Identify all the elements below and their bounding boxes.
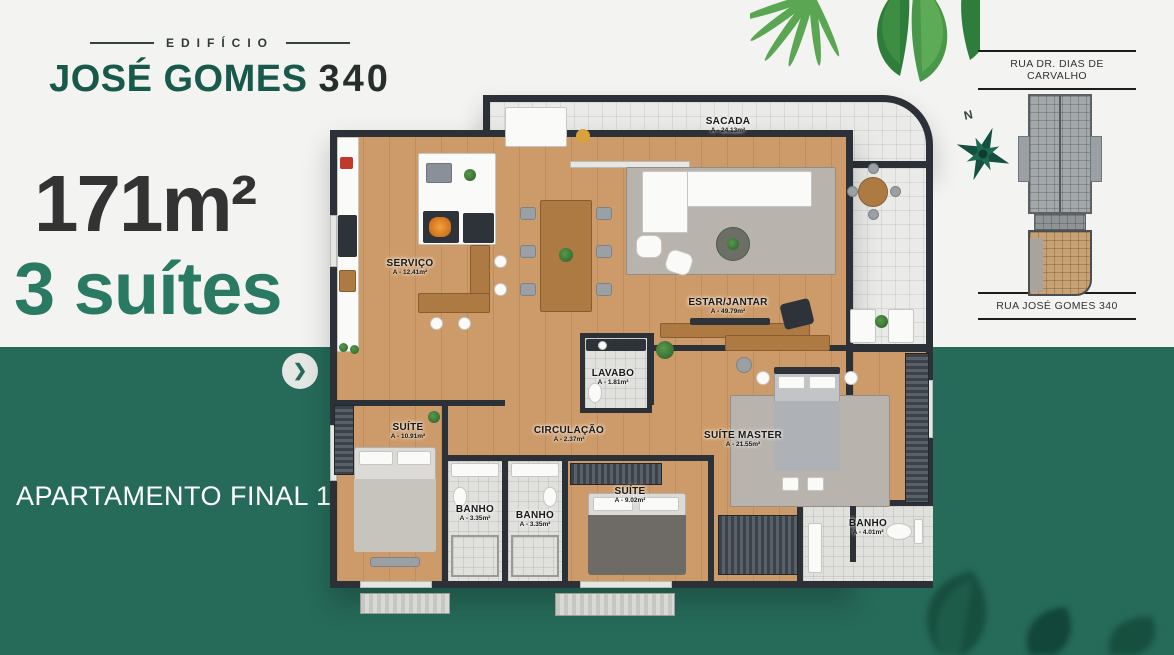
outdoor-chair	[868, 163, 879, 174]
dining-chair	[520, 245, 536, 258]
bar-stool	[494, 255, 507, 268]
plant	[656, 341, 674, 359]
chevron-right-icon: ❯	[293, 361, 307, 381]
foot-bench	[807, 477, 824, 491]
cooktop	[338, 215, 357, 257]
tv	[690, 318, 770, 325]
bed-blanket	[588, 515, 686, 575]
street-label-top: RUA DR. DIAS DE CARVALHO	[978, 50, 1136, 90]
room-label-suite-1: SUÍTE A - 10.91m²	[391, 422, 425, 440]
wardrobe	[718, 515, 798, 575]
pillow	[397, 451, 431, 465]
headboard	[774, 367, 840, 374]
plant	[339, 343, 348, 352]
pillow	[778, 376, 805, 389]
minimap-wing-right	[1090, 136, 1102, 182]
toilet	[543, 487, 557, 507]
logo-building-number: 340	[319, 58, 391, 100]
island-sink	[426, 163, 452, 183]
wall	[562, 455, 568, 581]
desk-chair	[736, 357, 752, 373]
minimap-highlighted-unit	[1028, 230, 1092, 296]
dining-chair	[596, 207, 612, 220]
minimap-divider	[1059, 96, 1061, 212]
compass-star-icon	[950, 106, 1012, 190]
dark-leaves-decoration	[920, 535, 1174, 655]
exterior-bench	[555, 593, 675, 616]
apartment-area-stat: 171m²	[34, 158, 255, 250]
apartment-suites-stat: 3 suítes	[14, 246, 282, 331]
wardrobe	[334, 405, 354, 475]
wardrobe	[905, 353, 929, 503]
toilet-tank	[914, 519, 923, 544]
pillow	[809, 376, 836, 389]
logo-building-name: JOSÉ GOMES	[49, 58, 307, 100]
shower	[511, 535, 559, 577]
room-label-sacada: SACADA A - 24.13m²	[706, 116, 751, 134]
bar-stool	[494, 283, 507, 296]
wall	[708, 455, 714, 581]
dining-chair	[596, 245, 612, 258]
building-minimap	[1018, 92, 1102, 298]
pillow	[359, 451, 393, 465]
bed-blanket	[774, 401, 840, 471]
plant	[875, 315, 888, 328]
room-label-suite-2: SUÍTE A - 9.02m²	[615, 486, 646, 504]
lavabo-basin	[598, 341, 607, 350]
compass-rose: N	[950, 106, 1012, 195]
room-label-servico: SERVIÇO A - 12.41m²	[387, 258, 434, 276]
dining-chair	[520, 207, 536, 220]
coffee-table-plant	[727, 238, 739, 250]
minimap-unit-rooms	[1030, 238, 1043, 292]
sun-lounger	[850, 309, 876, 343]
sun-lounger	[888, 309, 914, 343]
plant	[350, 345, 359, 354]
vanity	[808, 523, 822, 573]
sofa-chaise	[642, 171, 688, 233]
fireplace-flame	[429, 217, 451, 237]
outdoor-chair	[868, 209, 879, 220]
logo-edificio-label: EDIFÍCIO	[166, 36, 274, 50]
logo-line-left	[90, 42, 154, 44]
floor-plan: SACADA A - 24.13m² SERVIÇO A - 12.41m² E…	[330, 95, 940, 617]
room-label-suite-master: SUÍTE MASTER A - 21.55m²	[704, 430, 782, 448]
plant	[428, 411, 440, 423]
room-label-banho-3: BANHO A - 4.01m²	[849, 518, 887, 536]
bed-blanket	[354, 479, 436, 552]
room-label-circulacao: CIRCULAÇÃO A - 2.37m²	[534, 425, 604, 443]
vanity	[451, 463, 499, 477]
outdoor-chair	[847, 186, 858, 197]
outdoor-sofa	[505, 107, 567, 147]
foot-bench	[782, 477, 799, 491]
bar-counter	[418, 293, 490, 313]
outdoor-chair	[890, 186, 901, 197]
vanity	[511, 463, 559, 477]
minimap-core	[1034, 214, 1086, 230]
desk	[725, 335, 830, 351]
minimap-wing-left	[1018, 136, 1030, 182]
room-label-estar-jantar: ESTAR/JANTAR A - 49.79m²	[688, 297, 767, 315]
armchair	[636, 235, 662, 258]
dining-chair	[596, 283, 612, 296]
nightstand	[844, 371, 858, 385]
bar-stool	[430, 317, 443, 330]
nightstand	[756, 371, 770, 385]
coffee-machine	[340, 157, 353, 169]
oven-box	[463, 213, 494, 243]
pouf	[576, 129, 590, 143]
window	[360, 581, 432, 588]
room-label-banho-1: BANHO A - 3.35m²	[456, 504, 494, 522]
window	[330, 215, 337, 267]
window	[580, 581, 672, 588]
bed-bench	[370, 557, 420, 567]
room-label-lavabo: LAVABO A - 1.81m²	[592, 368, 635, 386]
brand-logo: EDIFÍCIO JOSÉ GOMES 340	[40, 36, 400, 101]
wall	[330, 400, 505, 406]
flower-vase	[464, 169, 476, 181]
shower	[451, 535, 499, 577]
bar-stool	[458, 317, 471, 330]
cutting-board	[339, 270, 356, 292]
toilet	[886, 523, 912, 540]
room-label-banho-2: BANHO A - 3.35m²	[516, 510, 554, 528]
next-arrow-button[interactable]: ❯	[282, 353, 318, 389]
exterior-bench	[360, 593, 450, 614]
table-plant	[559, 248, 573, 262]
apartment-final-label: APARTAMENTO FINAL 1	[16, 481, 332, 512]
round-table	[858, 177, 888, 207]
lavabo-counter	[586, 339, 646, 351]
wardrobe	[570, 463, 662, 485]
dining-chair	[520, 283, 536, 296]
logo-line-right	[286, 42, 350, 44]
